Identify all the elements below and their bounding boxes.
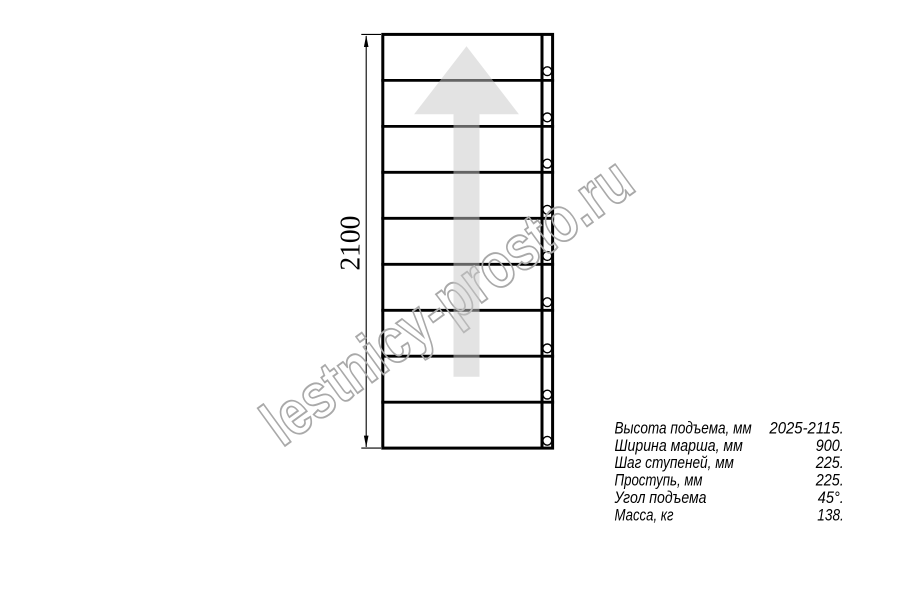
svg-text:lestnicy-prosto.ru: lestnicy-prosto.ru [248,142,646,459]
svg-text:Угол подъема: Угол подъема [614,488,707,507]
svg-text:225.: 225. [815,471,844,490]
svg-text:Ширина марша, мм: Ширина марша, мм [615,436,744,455]
svg-text:225.: 225. [815,453,844,472]
svg-text:Высота подъема, мм: Высота подъема, мм [615,418,752,437]
svg-text:45°.: 45°. [818,488,844,507]
svg-text:Шаг ступеней, мм: Шаг ступеней, мм [615,453,735,472]
svg-text:138.: 138. [817,505,844,524]
svg-text:2100: 2100 [334,216,366,271]
svg-text:Проступь, мм: Проступь, мм [615,471,703,490]
svg-text:900.: 900. [816,436,844,455]
svg-text:Масса, кг: Масса, кг [615,505,674,524]
svg-text:2025-2115.: 2025-2115. [769,418,844,437]
